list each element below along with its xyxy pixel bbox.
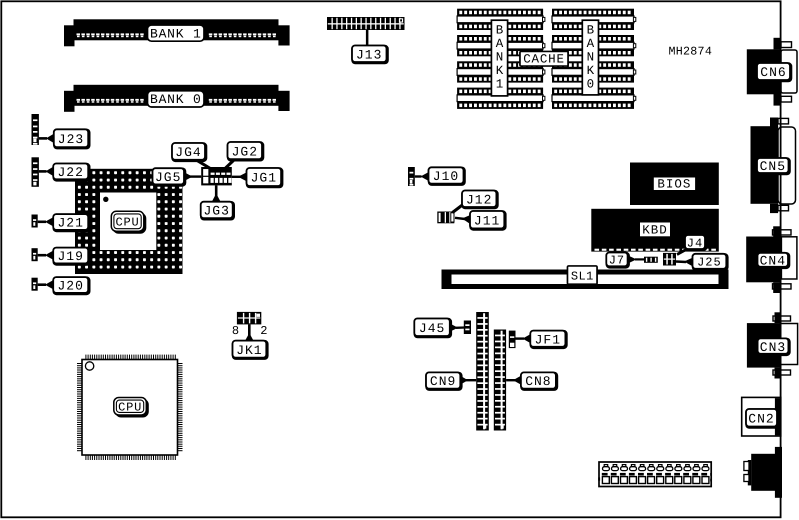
svg-text:B: B bbox=[496, 24, 504, 38]
svg-text:CPU: CPU bbox=[118, 401, 142, 415]
svg-text:0: 0 bbox=[587, 78, 595, 92]
svg-text:JG2: JG2 bbox=[232, 144, 258, 159]
svg-text:1: 1 bbox=[496, 78, 504, 92]
svg-text:J12: J12 bbox=[466, 192, 492, 207]
svg-text:J10: J10 bbox=[433, 169, 459, 184]
svg-text:2: 2 bbox=[260, 324, 267, 338]
svg-text:CN3: CN3 bbox=[760, 340, 786, 355]
svg-text:K: K bbox=[496, 64, 504, 78]
svg-text:MH2874: MH2874 bbox=[669, 44, 713, 58]
svg-text:JF1: JF1 bbox=[535, 332, 561, 347]
svg-text:BANK 0: BANK 0 bbox=[150, 92, 202, 107]
svg-text:J21: J21 bbox=[57, 216, 83, 231]
svg-text:JK1: JK1 bbox=[236, 343, 262, 358]
svg-text:J4: J4 bbox=[687, 236, 703, 250]
svg-text:J11: J11 bbox=[474, 213, 500, 228]
svg-text:JG4: JG4 bbox=[175, 145, 201, 160]
svg-text:CN4: CN4 bbox=[760, 254, 786, 269]
svg-text:CN5: CN5 bbox=[760, 159, 786, 174]
svg-text:A: A bbox=[496, 37, 504, 51]
svg-text:J20: J20 bbox=[57, 279, 83, 294]
svg-text:CN8: CN8 bbox=[525, 374, 551, 389]
svg-text:J22: J22 bbox=[57, 165, 83, 180]
svg-text:J19: J19 bbox=[57, 249, 83, 264]
svg-text:BANK 1: BANK 1 bbox=[150, 26, 202, 41]
svg-text:J23: J23 bbox=[58, 132, 84, 147]
svg-text:N: N bbox=[587, 51, 595, 65]
svg-text:B: B bbox=[587, 24, 595, 38]
svg-text:A: A bbox=[587, 37, 595, 51]
svg-text:K: K bbox=[587, 64, 595, 78]
svg-text:CN2: CN2 bbox=[748, 411, 774, 426]
svg-text:J13: J13 bbox=[356, 47, 382, 62]
svg-text:J25: J25 bbox=[697, 256, 722, 270]
svg-text:CN6: CN6 bbox=[760, 65, 786, 80]
svg-text:CPU: CPU bbox=[115, 216, 139, 230]
svg-text:BIOS: BIOS bbox=[657, 178, 691, 192]
svg-text:CACHE: CACHE bbox=[523, 53, 565, 67]
svg-text:KBD: KBD bbox=[642, 224, 668, 238]
svg-text:J45: J45 bbox=[419, 321, 445, 336]
svg-text:SL1: SL1 bbox=[571, 270, 594, 284]
svg-text:JG1: JG1 bbox=[251, 171, 277, 186]
svg-text:JG3: JG3 bbox=[203, 204, 229, 219]
svg-text:J7: J7 bbox=[609, 254, 625, 268]
svg-text:JG5: JG5 bbox=[155, 170, 181, 185]
svg-text:8: 8 bbox=[232, 324, 239, 338]
svg-text:CN9: CN9 bbox=[430, 374, 456, 389]
svg-text:N: N bbox=[496, 51, 504, 65]
